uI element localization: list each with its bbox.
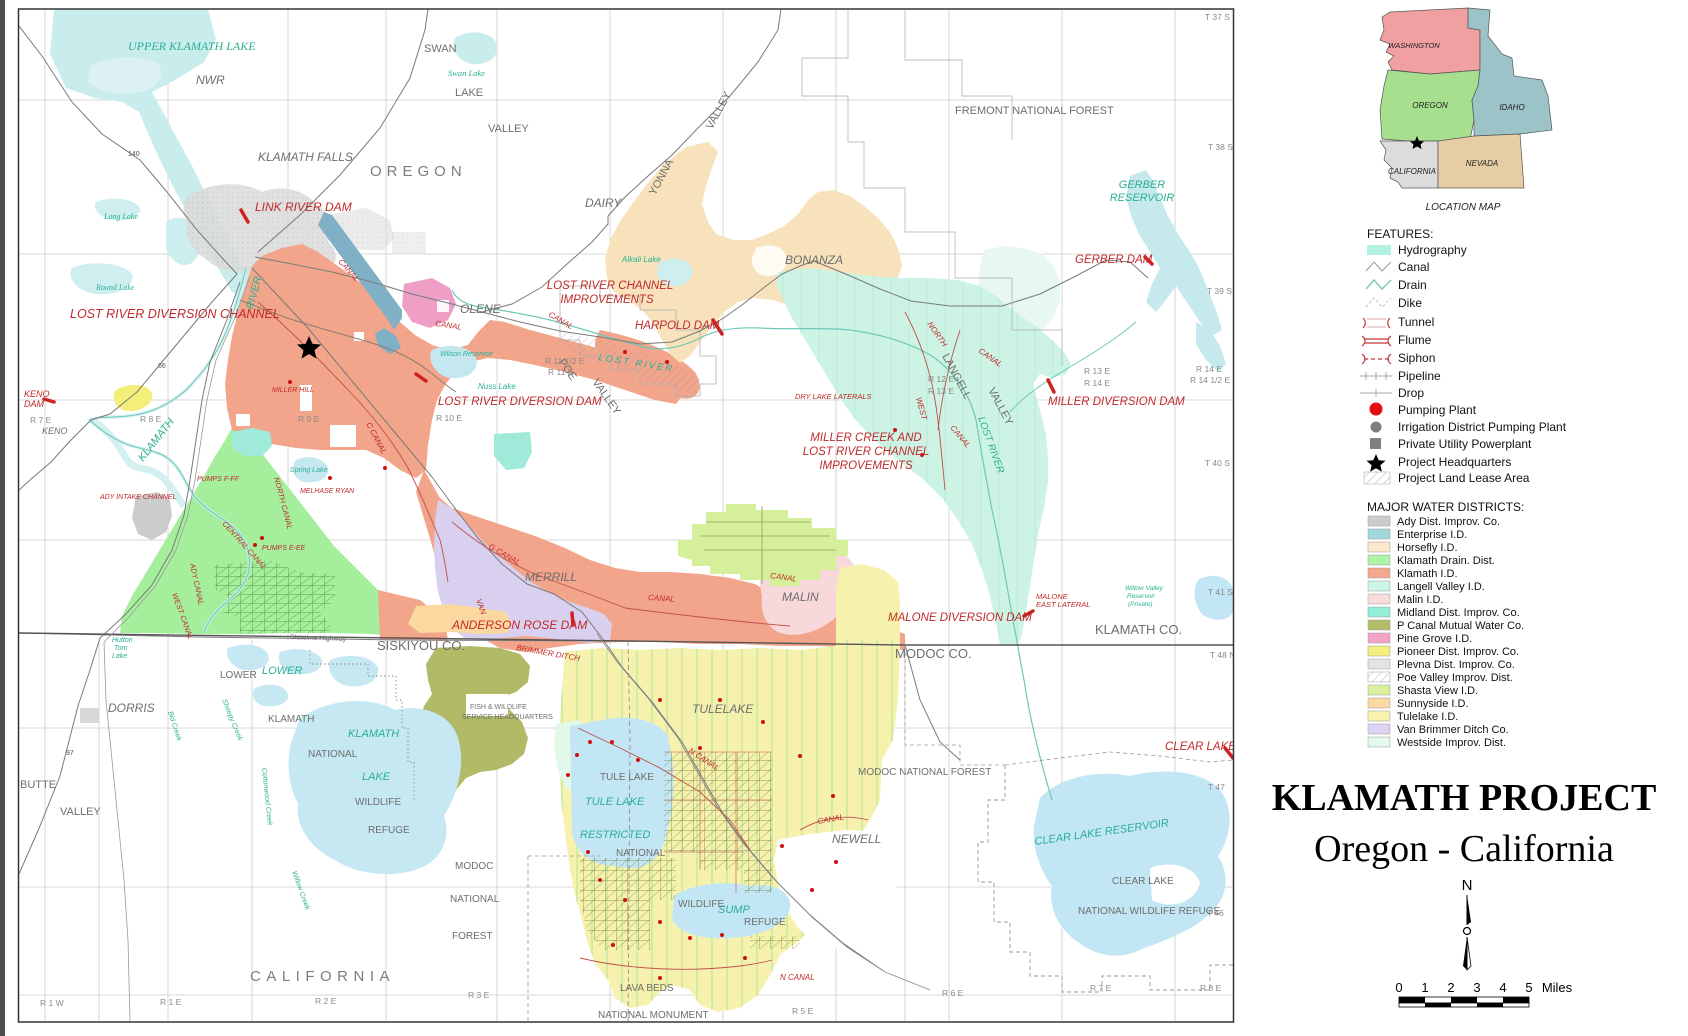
svg-text:KLAMATH: KLAMATH xyxy=(348,728,399,740)
svg-text:NATIONAL WILDLIFE REFUGE: NATIONAL WILDLIFE REFUGE xyxy=(1078,906,1221,917)
svg-text:T 41 S: T 41 S xyxy=(1208,587,1233,597)
svg-text:66: 66 xyxy=(158,363,166,370)
svg-text:Horsefly I.D.: Horsefly I.D. xyxy=(1397,542,1458,554)
svg-text:R 8 E: R 8 E xyxy=(1200,983,1222,993)
svg-text:Project Headquarters: Project Headquarters xyxy=(1398,455,1511,469)
svg-text:T 37 S: T 37 S xyxy=(1205,12,1230,22)
svg-text:Klamath I.D.: Klamath I.D. xyxy=(1397,568,1458,580)
svg-text:IMPROVEMENTS: IMPROVEMENTS xyxy=(560,294,654,306)
svg-text:KLAMATH FALLS: KLAMATH FALLS xyxy=(258,150,353,164)
svg-text:Irrigation District Pumping Pl: Irrigation District Pumping Plant xyxy=(1398,420,1567,434)
svg-text:RESTRICTED: RESTRICTED xyxy=(580,829,650,841)
svg-text:Willow Valley: Willow Valley xyxy=(1125,585,1164,592)
svg-text:WASHINGTON: WASHINGTON xyxy=(1388,41,1440,50)
svg-text:FEATURES:: FEATURES: xyxy=(1367,227,1433,241)
svg-text:IDAHO: IDAHO xyxy=(1499,103,1524,112)
svg-text:Ady Dist. Improv. Co.: Ady Dist. Improv. Co. xyxy=(1397,516,1500,528)
svg-text:Lake: Lake xyxy=(112,653,127,660)
svg-text:ADY INTAKE CHANNEL: ADY INTAKE CHANNEL xyxy=(99,494,176,501)
svg-text:(Private): (Private) xyxy=(1128,601,1153,608)
svg-text:Nuss Lake: Nuss Lake xyxy=(478,382,516,391)
svg-text:WILDLIFE: WILDLIFE xyxy=(678,899,724,910)
svg-text:LOWER: LOWER xyxy=(220,670,257,681)
svg-text:3: 3 xyxy=(1473,980,1480,995)
svg-text:Drop: Drop xyxy=(1398,386,1424,400)
svg-text:Long Lake: Long Lake xyxy=(103,212,138,221)
svg-text:Pipeline: Pipeline xyxy=(1398,369,1441,383)
svg-text:MODOC: MODOC xyxy=(455,861,493,872)
svg-text:Spring Lake: Spring Lake xyxy=(290,467,327,474)
svg-text:Dike: Dike xyxy=(1398,296,1422,310)
svg-text:R 14 E: R 14 E xyxy=(1196,364,1222,374)
svg-text:Tom: Tom xyxy=(114,645,128,652)
svg-text:R 7 E: R 7 E xyxy=(30,415,52,425)
svg-text:MERRILL: MERRILL xyxy=(525,570,577,584)
svg-text:R 11 E: R 11 E xyxy=(548,367,574,377)
svg-text:R 1 W: R 1 W xyxy=(40,998,64,1008)
svg-text:0: 0 xyxy=(1395,980,1402,995)
svg-text:T 38 S: T 38 S xyxy=(1208,142,1233,152)
svg-text:Hydrography: Hydrography xyxy=(1398,243,1467,257)
svg-text:Midland Dist. Improv. Co.: Midland Dist. Improv. Co. xyxy=(1397,607,1520,619)
svg-text:MELHASE RYAN: MELHASE RYAN xyxy=(300,488,355,495)
svg-text:LAKE: LAKE xyxy=(362,771,391,783)
svg-text:PUMPS E-EE: PUMPS E-EE xyxy=(262,545,306,552)
svg-text:R 9 E: R 9 E xyxy=(298,414,320,424)
svg-text:Canal: Canal xyxy=(1398,260,1429,274)
svg-text:GERBER DAM: GERBER DAM xyxy=(1075,254,1153,266)
svg-text:OREGON: OREGON xyxy=(370,163,467,180)
svg-text:DRY LAKE LATERALS: DRY LAKE LATERALS xyxy=(795,392,872,401)
svg-text:LAKE: LAKE xyxy=(455,87,483,99)
svg-text:T 47: T 47 xyxy=(1208,782,1225,792)
svg-text:TULELAKE: TULELAKE xyxy=(692,702,754,716)
svg-text:TULE LAKE: TULE LAKE xyxy=(600,772,654,783)
svg-text:VALLEY: VALLEY xyxy=(60,806,101,818)
svg-text:REFUGE: REFUGE xyxy=(368,825,410,836)
svg-text:OLENE: OLENE xyxy=(460,302,502,316)
svg-text:Tunnel: Tunnel xyxy=(1398,315,1434,329)
svg-text:N: N xyxy=(1462,877,1473,894)
svg-text:Van Brimmer Ditch Co.: Van Brimmer Ditch Co. xyxy=(1397,724,1509,736)
svg-text:Private Utility Powerplant: Private Utility Powerplant xyxy=(1398,437,1532,451)
svg-text:Klamath Drain. Dist.: Klamath Drain. Dist. xyxy=(1397,555,1495,567)
svg-text:Miles: Miles xyxy=(1542,980,1573,995)
svg-text:4: 4 xyxy=(1499,980,1506,995)
svg-text:FOREST: FOREST xyxy=(452,931,493,942)
svg-text:Malin I.D.: Malin I.D. xyxy=(1397,594,1443,606)
svg-text:R 11 1/2 E: R 11 1/2 E xyxy=(545,356,585,366)
svg-text:LINK RIVER DAM: LINK RIVER DAM xyxy=(255,200,352,214)
svg-text:NEWELL: NEWELL xyxy=(832,832,881,846)
svg-text:MALONE DIVERSION DAM: MALONE DIVERSION DAM xyxy=(888,612,1032,624)
svg-text:R 2 E: R 2 E xyxy=(315,996,337,1006)
svg-text:Westside Improv. Dist.: Westside Improv. Dist. xyxy=(1397,737,1506,749)
svg-text:Shasta View I.D.: Shasta View I.D. xyxy=(1397,685,1478,697)
svg-text:GERBER: GERBER xyxy=(1119,179,1166,191)
svg-text:KENO: KENO xyxy=(42,426,68,436)
svg-text:Pioneer Dist. Improv. Co.: Pioneer Dist. Improv. Co. xyxy=(1397,646,1519,658)
svg-text:R 13 E: R 13 E xyxy=(1084,366,1110,376)
svg-text:NEVADA: NEVADA xyxy=(1466,159,1498,168)
svg-text:VALLEY: VALLEY xyxy=(488,123,529,135)
svg-text:Round Lake: Round Lake xyxy=(95,283,135,292)
svg-text:TULE LAKE: TULE LAKE xyxy=(585,796,645,808)
svg-text:CLEAR LAKE: CLEAR LAKE xyxy=(1112,876,1174,887)
svg-text:Alkali Lake: Alkali Lake xyxy=(621,255,661,264)
svg-text:P Canal Mutual Water Co.: P Canal Mutual Water Co. xyxy=(1397,620,1524,632)
svg-text:NATIONAL: NATIONAL xyxy=(450,894,500,905)
svg-text:REFUGE: REFUGE xyxy=(744,917,786,928)
svg-text:R 7 E: R 7 E xyxy=(1090,983,1112,993)
svg-text:DAIRY: DAIRY xyxy=(585,196,622,210)
svg-text:T 46: T 46 xyxy=(1207,908,1224,918)
svg-text:Swan Lake: Swan Lake xyxy=(448,68,485,78)
svg-text:N CANAL: N CANAL xyxy=(780,973,815,982)
svg-text:HARPOLD DAM: HARPOLD DAM xyxy=(635,320,720,332)
svg-text:CALIFORNIA: CALIFORNIA xyxy=(1388,167,1436,176)
svg-text:DAM: DAM xyxy=(24,399,45,409)
svg-text:T 48 N: T 48 N xyxy=(1210,650,1235,660)
svg-text:FREMONT NATIONAL FOREST: FREMONT NATIONAL FOREST xyxy=(955,105,1114,117)
svg-text:ANDERSON ROSE DAM: ANDERSON ROSE DAM xyxy=(451,618,587,632)
svg-text:Pumping Plant: Pumping Plant xyxy=(1398,403,1477,417)
svg-text:DORRIS: DORRIS xyxy=(108,701,155,715)
svg-text:MILLER CREEK AND: MILLER CREEK AND xyxy=(810,432,921,444)
svg-text:BONANZA: BONANZA xyxy=(785,253,843,267)
svg-text:T 40 S: T 40 S xyxy=(1205,458,1230,468)
svg-text:SERVICE HEADQUARTERS: SERVICE HEADQUARTERS xyxy=(462,714,553,721)
svg-text:NATIONAL: NATIONAL xyxy=(616,848,666,859)
svg-text:NATIONAL MONUMENT: NATIONAL MONUMENT xyxy=(598,1010,709,1021)
svg-text:LOCATION MAP: LOCATION MAP xyxy=(1426,202,1501,213)
svg-text:OREGON: OREGON xyxy=(1412,101,1448,110)
svg-text:R 6 E: R 6 E xyxy=(942,988,964,998)
svg-text:Tulelake I.D.: Tulelake I.D. xyxy=(1397,711,1458,723)
svg-text:FISH & WILDLIFE: FISH & WILDLIFE xyxy=(470,704,527,711)
svg-text:MILLER HILL: MILLER HILL xyxy=(272,387,314,394)
svg-text:NATIONAL: NATIONAL xyxy=(308,749,358,760)
svg-text:MILLER DIVERSION DAM: MILLER DIVERSION DAM xyxy=(1048,396,1185,408)
svg-text:EAST LATERAL: EAST LATERAL xyxy=(1036,600,1090,609)
svg-text:BUTTE: BUTTE xyxy=(20,779,56,791)
svg-text:2: 2 xyxy=(1447,980,1454,995)
svg-text:R 14 E: R 14 E xyxy=(1084,378,1110,388)
svg-text:Wilson Reservoir: Wilson Reservoir xyxy=(440,351,494,358)
svg-text:Langell Valley I.D.: Langell Valley I.D. xyxy=(1397,581,1485,593)
svg-text:Enterprise I.D.: Enterprise I.D. xyxy=(1397,529,1467,541)
svg-text:MAJOR WATER DISTRICTS:: MAJOR WATER DISTRICTS: xyxy=(1367,500,1524,514)
svg-text:T 39 S: T 39 S xyxy=(1207,286,1232,296)
svg-text:R 10 E: R 10 E xyxy=(436,413,462,423)
svg-text:PUMPS F-FF: PUMPS F-FF xyxy=(197,476,240,483)
svg-text:KENO: KENO xyxy=(24,389,50,399)
svg-text:Oregon - California: Oregon - California xyxy=(1314,828,1614,870)
svg-text:KLAMATH PROJECT: KLAMATH PROJECT xyxy=(1272,777,1657,819)
svg-text:MALIN: MALIN xyxy=(782,590,819,604)
svg-text:UPPER KLAMATH LAKE: UPPER KLAMATH LAKE xyxy=(128,39,256,53)
svg-text:1: 1 xyxy=(1421,980,1428,995)
svg-text:MODOC NATIONAL FOREST: MODOC NATIONAL FOREST xyxy=(858,767,991,778)
svg-text:IMPROVEMENTS: IMPROVEMENTS xyxy=(819,460,913,472)
svg-text:MODOC CO.: MODOC CO. xyxy=(895,646,972,661)
svg-text:WILDLIFE: WILDLIFE xyxy=(355,797,401,808)
svg-text:Drain: Drain xyxy=(1398,278,1427,292)
svg-text:140: 140 xyxy=(128,151,140,158)
svg-text:Plevna Dist. Improv. Co.: Plevna Dist. Improv. Co. xyxy=(1397,659,1515,671)
svg-text:LOWER: LOWER xyxy=(262,665,302,677)
svg-text:97: 97 xyxy=(66,750,74,757)
svg-text:LOST RIVER DIVERSION DAM: LOST RIVER DIVERSION DAM xyxy=(438,396,602,408)
svg-text:LAVA BEDS: LAVA BEDS xyxy=(620,983,674,994)
svg-text:R 12 E: R 12 E xyxy=(928,374,954,384)
svg-text:CALIFORNIA: CALIFORNIA xyxy=(250,968,395,985)
svg-text:R 8 E: R 8 E xyxy=(140,414,162,424)
svg-text:Poe Valley Improv. Dist.: Poe Valley Improv. Dist. xyxy=(1397,672,1513,684)
svg-text:RESERVOIR: RESERVOIR xyxy=(1110,192,1175,204)
svg-text:R 13 E: R 13 E xyxy=(928,386,954,396)
svg-text:KLAMATH CO.: KLAMATH CO. xyxy=(1095,622,1182,637)
svg-text:NWR: NWR xyxy=(196,73,225,87)
svg-text:Project Land Lease Area: Project Land Lease Area xyxy=(1398,471,1530,485)
svg-text:R 14 1/2 E: R 14 1/2 E xyxy=(1190,375,1230,385)
svg-text:Siphon: Siphon xyxy=(1398,351,1435,365)
svg-text:SISKIYOU CO.: SISKIYOU CO. xyxy=(377,638,465,653)
svg-text:Hutton: Hutton xyxy=(112,637,133,644)
svg-text:Pine Grove I.D.: Pine Grove I.D. xyxy=(1397,633,1472,645)
svg-text:Flume: Flume xyxy=(1398,333,1432,347)
svg-text:LOST RIVER CHANNEL: LOST RIVER CHANNEL xyxy=(803,446,930,458)
svg-text:Sunnyside I.D.: Sunnyside I.D. xyxy=(1397,698,1469,710)
svg-text:LOST RIVER CHANNEL: LOST RIVER CHANNEL xyxy=(547,280,674,292)
svg-text:KLAMATH: KLAMATH xyxy=(268,714,315,725)
svg-text:R 5 E: R 5 E xyxy=(792,1006,814,1016)
svg-text:Reservoir: Reservoir xyxy=(1127,593,1156,600)
svg-text:R 1 E: R 1 E xyxy=(160,997,182,1007)
svg-text:CANAL: CANAL xyxy=(648,593,675,604)
svg-text:5: 5 xyxy=(1525,980,1532,995)
svg-text:R 3 E: R 3 E xyxy=(468,990,490,1000)
svg-text:SWAN: SWAN xyxy=(424,43,457,55)
